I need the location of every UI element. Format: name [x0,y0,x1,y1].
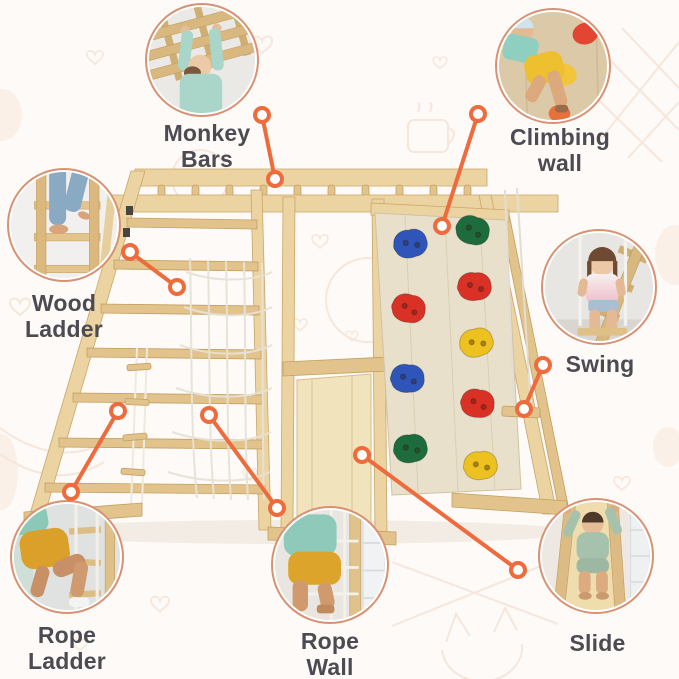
label-wood-ladder: WoodLadder [0,290,144,342]
feature-photo-rope-wall [271,506,389,624]
label-rope-wall: RopeWall [250,628,410,679]
coffee-cup-doodle [408,102,454,152]
infographic-canvas: MonkeyBars Climbingwall WoodLadder Swing… [0,0,679,679]
feature-photo-rope-ladder [10,500,124,614]
label-monkey-bars: MonkeyBars [127,120,287,172]
feature-photo-climbing-wall [495,8,611,124]
feature-photo-monkey-bars [145,3,259,117]
label-swing: Swing [545,351,655,377]
climbing-hold [457,273,491,301]
label-climbing-wall: Climbingwall [480,124,640,176]
rope-ladder-hanging [121,348,151,505]
cat-doodle [442,608,522,679]
label-rope-ladder: RopeLadder [0,622,147,674]
label-slide: Slide [540,630,655,656]
feature-photo-wood-ladder [7,168,121,282]
feature-photo-swing [541,229,657,345]
feature-photo-slide [538,498,654,614]
